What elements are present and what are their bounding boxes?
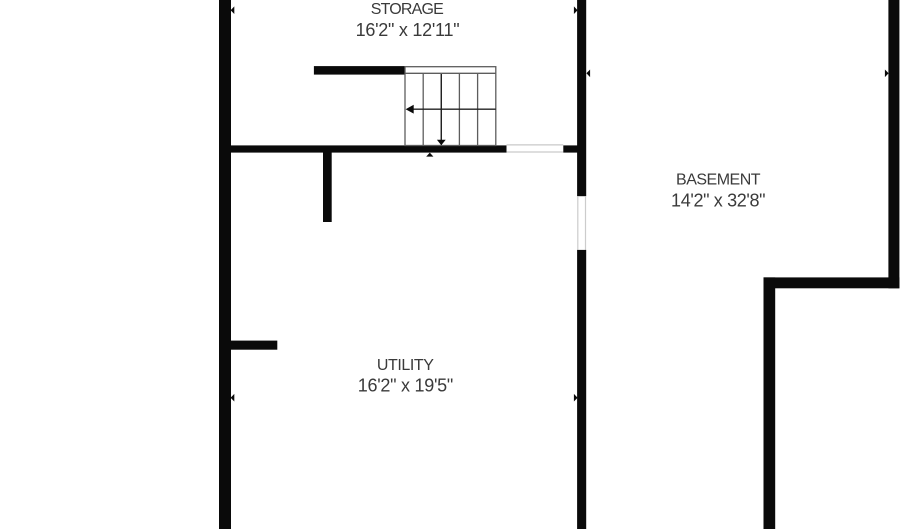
svg-text:BASEMENT: BASEMENT bbox=[676, 171, 761, 188]
svg-text:16'2" x 19'5": 16'2" x 19'5" bbox=[358, 376, 454, 396]
svg-text:16'2" x 12'11": 16'2" x 12'11" bbox=[356, 20, 460, 40]
svg-text:UTILITY: UTILITY bbox=[377, 357, 434, 374]
svg-text:14'2" x 32'8": 14'2" x 32'8" bbox=[671, 191, 766, 211]
svg-text:STORAGE: STORAGE bbox=[371, 1, 444, 18]
